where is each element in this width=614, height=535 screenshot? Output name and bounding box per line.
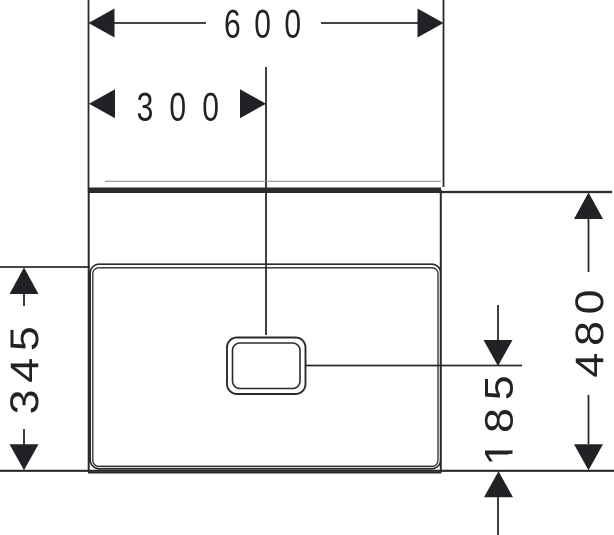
svg-text:600: 600 bbox=[224, 3, 315, 47]
svg-text:300: 300 bbox=[137, 86, 235, 130]
svg-text:345: 345 bbox=[2, 319, 46, 414]
svg-text:185: 185 bbox=[477, 367, 521, 465]
svg-text:480: 480 bbox=[567, 283, 611, 378]
